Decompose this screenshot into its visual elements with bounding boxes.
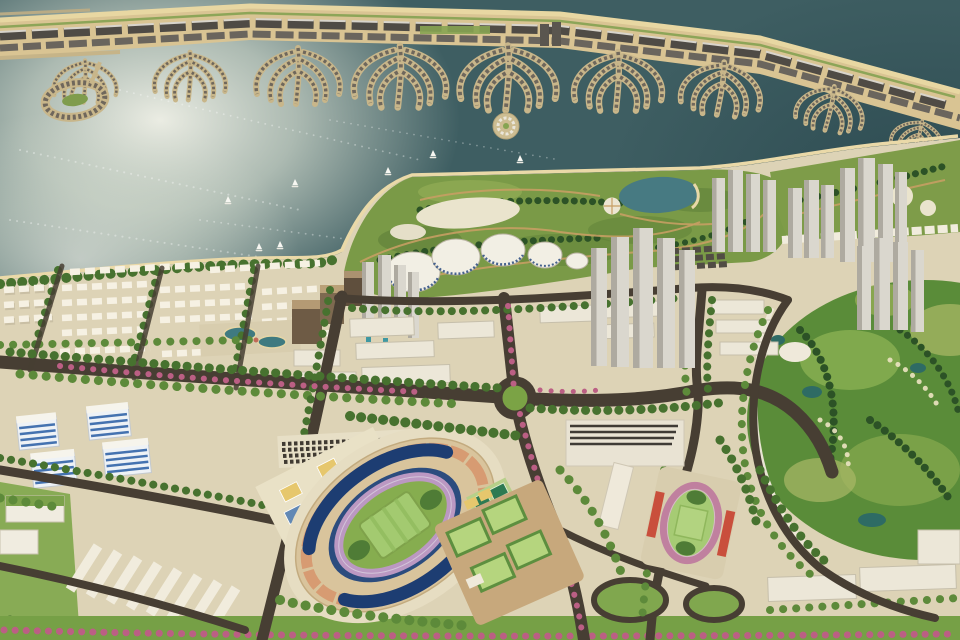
tower-cluster-b xyxy=(788,180,834,258)
masterplan-render xyxy=(0,0,960,640)
golf-clubhouse xyxy=(779,342,811,362)
lawn-circle xyxy=(920,200,936,216)
lawn-oval-small xyxy=(390,224,426,240)
island-tower-1 xyxy=(540,24,549,46)
island-park-strip xyxy=(420,26,490,34)
plaza-circle xyxy=(604,198,621,215)
round-island xyxy=(493,113,519,139)
island-tower-2 xyxy=(552,22,561,46)
masterplan-svg xyxy=(0,0,960,640)
